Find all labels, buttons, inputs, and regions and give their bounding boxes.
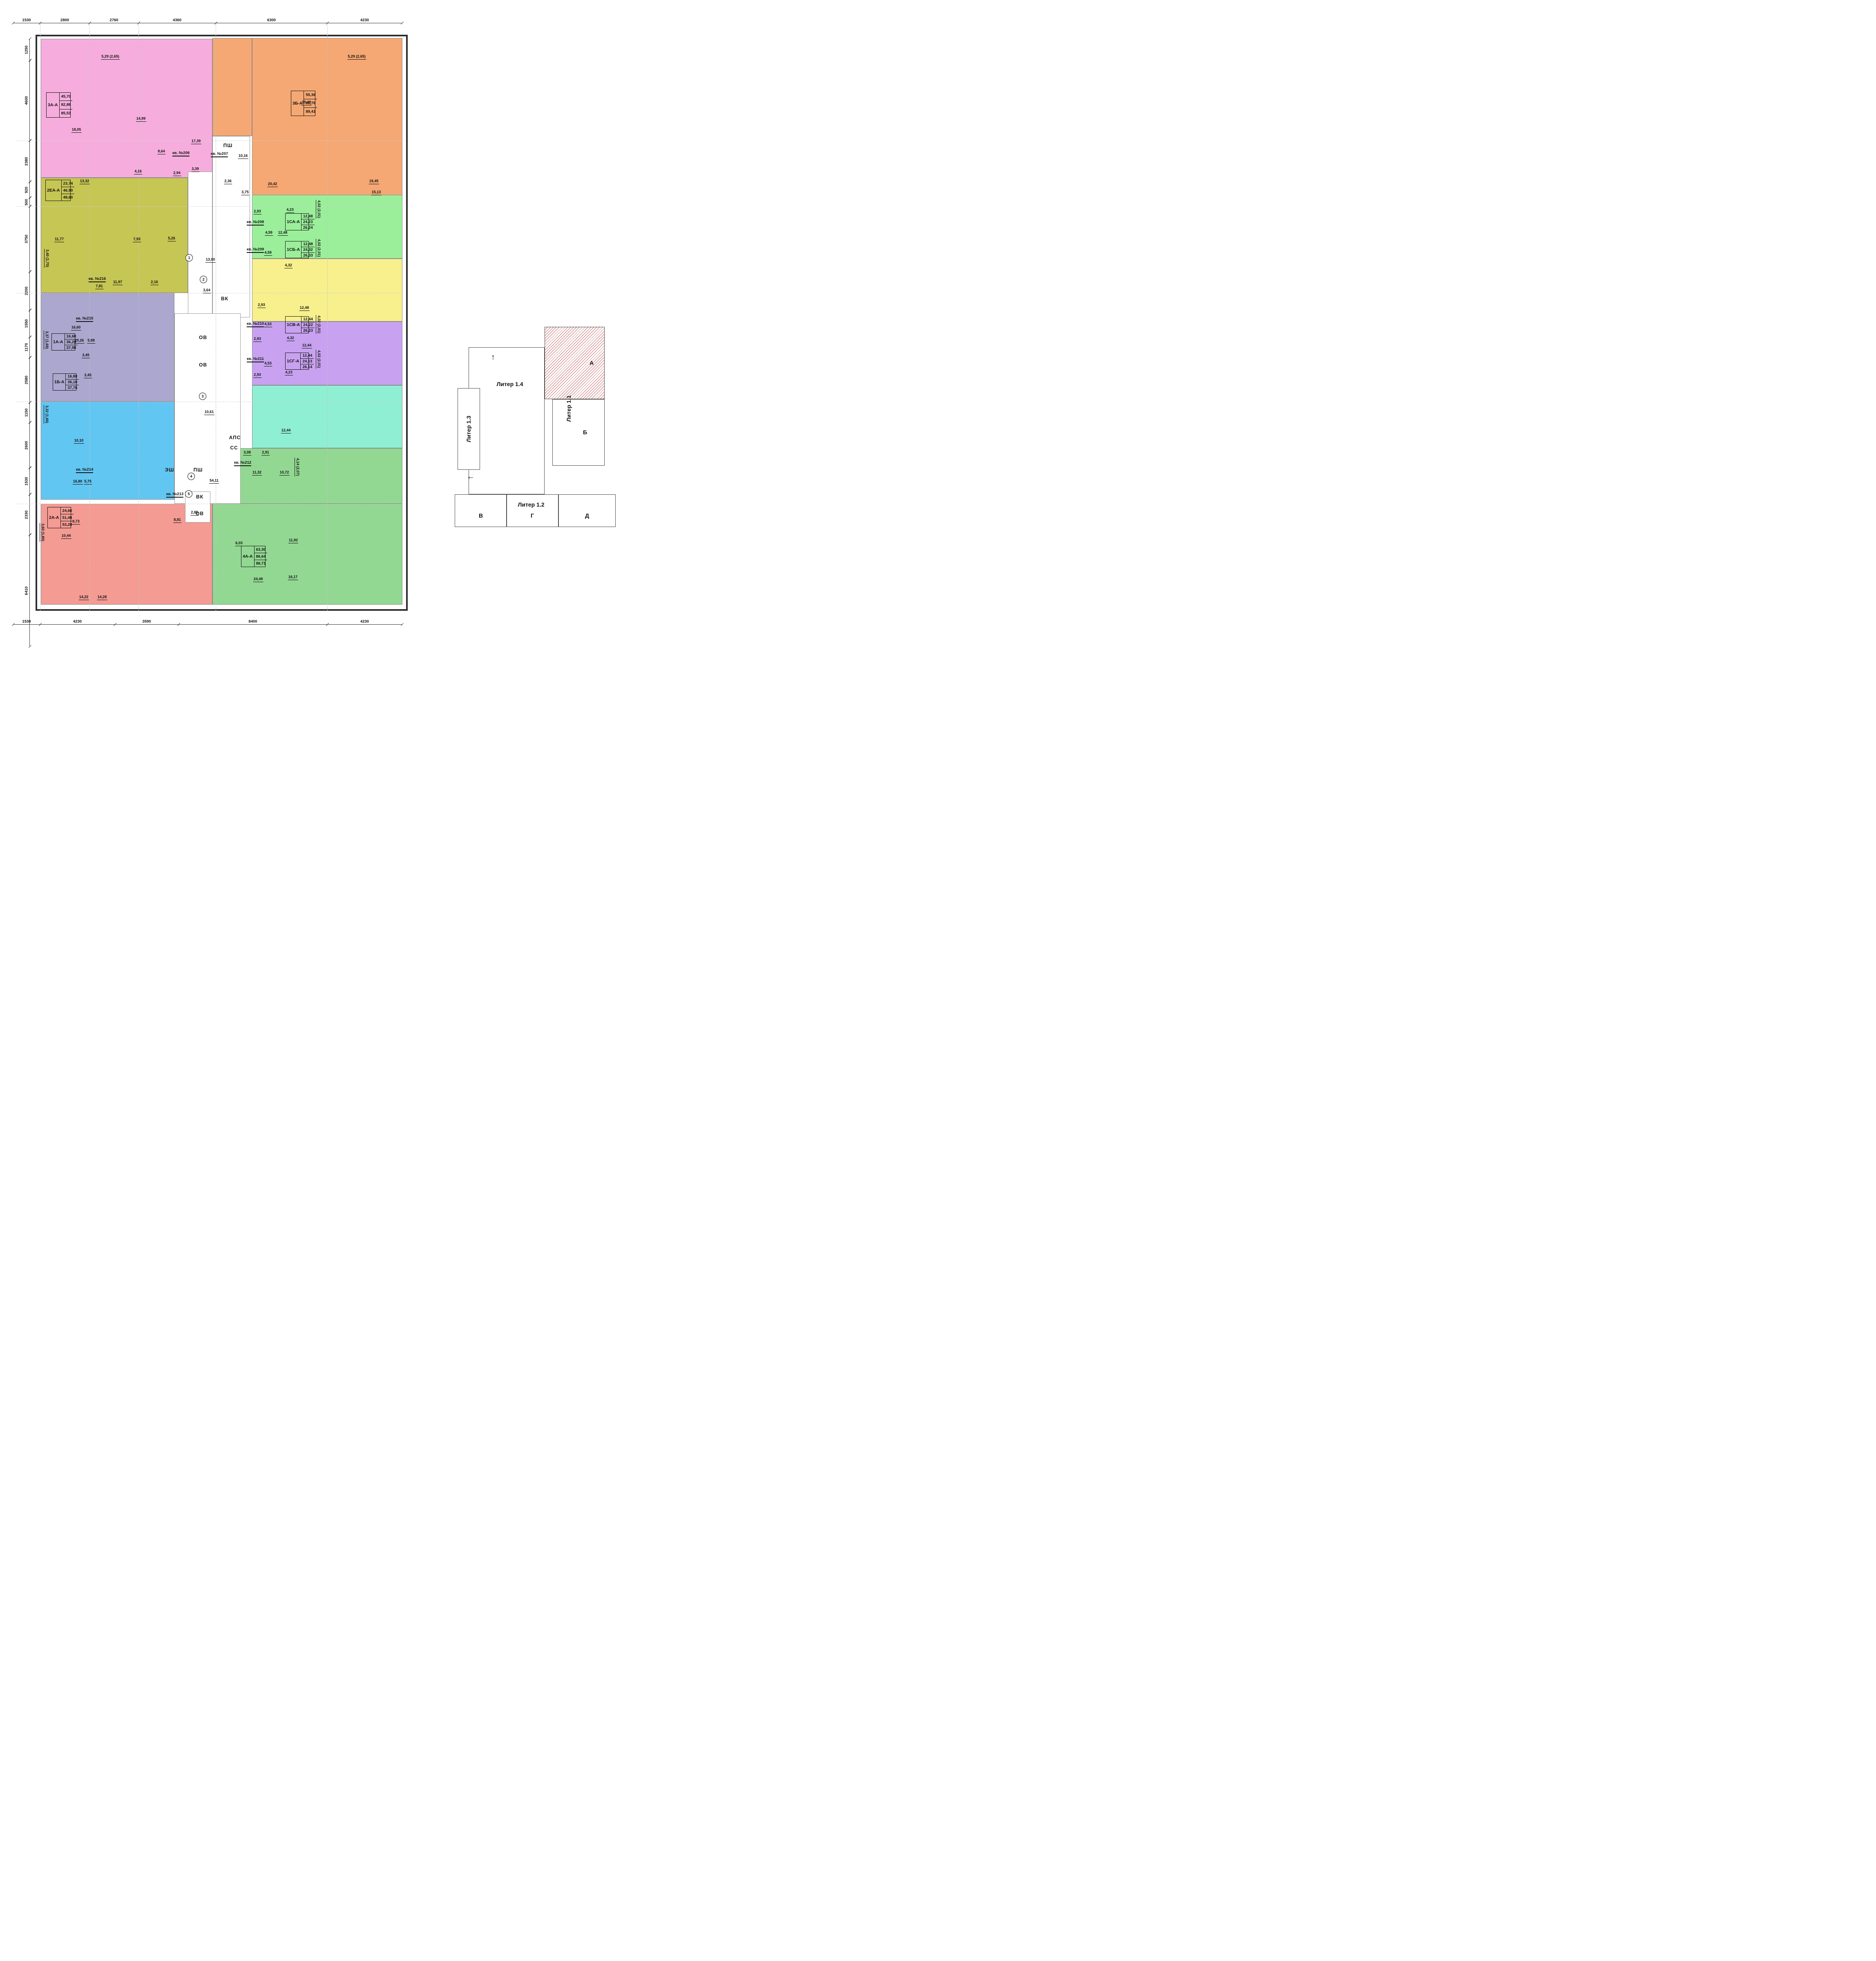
keyplan-label-liter14: Литер 1.4: [497, 381, 523, 387]
flat-number-label: кв. №215: [76, 316, 93, 322]
dimension-segment: 4600: [29, 60, 30, 141]
shaft-label: ВК: [221, 296, 228, 302]
dim-tick: [400, 623, 403, 626]
room-area-label: 3,75: [241, 190, 249, 195]
dimension-value: 4230: [360, 619, 369, 624]
dim-tick: [28, 421, 31, 424]
apartment-areas: 23,7446,9048,60: [61, 180, 75, 201]
apartment-areas: 63,3086,6488,71: [254, 546, 268, 567]
apartment-type-label: 1СБ-А: [286, 241, 301, 258]
room-area-label: 4,53: [264, 362, 272, 366]
room-area-label: 3,32 (1,66): [44, 405, 49, 424]
apartment-area-value: 51,48: [61, 514, 74, 521]
room-area-label: 3,40 (1,70): [44, 249, 49, 268]
dimension-value: 2600: [25, 440, 29, 450]
dimension-segment: 1530: [13, 23, 40, 23]
shaft-label: ПШ: [194, 467, 203, 473]
apartment-areas: 24,6651,4853,28: [60, 507, 74, 528]
dimension-value: 1550: [25, 319, 29, 328]
room-area-label: 12,48: [278, 231, 288, 236]
room-area-label: 10,10: [74, 439, 84, 444]
dimension-segment: 6410: [29, 535, 30, 646]
dimension-segment: 1530: [29, 468, 30, 494]
room-area-label: 3,39: [191, 167, 199, 172]
dimension-segment: 4230: [40, 624, 115, 625]
apartment-info-box: 1СВ-А12,4424,2226,23: [285, 316, 309, 333]
apartment-area-value: 36,10: [66, 379, 79, 385]
dimension-segment: 4230: [327, 23, 402, 23]
apartment-area-value: 12,44: [301, 353, 314, 358]
dimension-segment: 2380: [29, 141, 30, 182]
keyplan-label-liter12: Литер 1.2: [518, 501, 545, 508]
apartment-area-value: 89,41: [304, 107, 317, 116]
dim-tick: [28, 180, 31, 183]
axis-line: [216, 25, 216, 611]
room-area-label: 4,23: [286, 208, 294, 213]
room-area-label: 3,37 (1,69): [44, 331, 49, 349]
apartment-area-value: 53,28: [61, 521, 74, 528]
dim-tick: [400, 22, 403, 25]
dimension-value: 2380: [25, 156, 29, 166]
node-number-1: 1: [185, 254, 193, 261]
room-area-label: 12,44: [281, 429, 291, 433]
dim-tick: [28, 356, 31, 359]
keyplan-label-g: Г: [531, 512, 534, 519]
apartment-type-label: 1СВ-А: [286, 317, 301, 333]
room-area-label: 5,26: [167, 237, 176, 241]
room-area-label: 11,77: [54, 237, 64, 242]
flat-number-label: кв. №212: [234, 460, 251, 466]
node-number-3: 3: [199, 393, 206, 400]
keyplan-block-d: [558, 494, 616, 527]
apartment-area-value: 85,53: [60, 109, 73, 117]
apartment-region-10: [240, 448, 402, 504]
apartment-areas: 16,6036,2937,98: [65, 334, 78, 350]
dimension-value: 4360: [172, 18, 182, 22]
room-area-label: 13,00: [205, 258, 216, 263]
dimension-segment: 2760: [89, 23, 138, 23]
room-area-label: 14,22: [79, 595, 89, 600]
axis-line: [16, 504, 404, 504]
room-area-label: 54,11: [209, 479, 219, 484]
keyplan-arrow-up-icon: ↑: [491, 353, 495, 362]
floor-plan-sheet: 3А-А45,7082,8885,53кв. №2063Б-А55,3686,7…: [0, 0, 625, 654]
shaft-label: ВК: [196, 494, 203, 500]
room-area-label: 19,45: [369, 179, 379, 184]
apartment-area-value: 12,48: [301, 241, 315, 247]
apartment-info-box: 1А-А16,6036,2937,98: [51, 333, 75, 351]
room-area-label: 7,81: [95, 284, 103, 289]
room-area-label: 4,32: [286, 336, 295, 341]
dimension-value: 8400: [248, 619, 257, 624]
apartment-region-1: [212, 38, 252, 136]
shaft-label: ПШ: [223, 143, 233, 148]
apartment-info-box: 1Б-А16,8036,1037,76: [53, 373, 76, 391]
node-number-5: 5: [185, 490, 192, 498]
shaft-label: ОВ: [196, 511, 204, 516]
axis-line: [327, 25, 328, 611]
apartment-area-value: 45,70: [60, 93, 73, 101]
dimension-segment: 1550: [29, 310, 30, 337]
dim-tick: [28, 196, 31, 199]
dimension-segment: 4360: [138, 23, 216, 23]
room-area-label: 12,48: [299, 306, 310, 311]
keyplan-label-liter13: Литер 1.3: [465, 416, 472, 442]
room-area-label: 4,02 (2,01): [316, 315, 321, 334]
apartment-info-box: 1СГ-А12,4424,1326,14: [285, 353, 309, 370]
apartment-area-value: 26,14: [301, 364, 314, 370]
room-area-label: 2,93: [257, 303, 266, 308]
shaft-label: ЭШ: [165, 467, 174, 473]
room-area-label: 7,93: [133, 237, 141, 242]
room-area-label: 4,59: [265, 231, 273, 236]
dimension-segment: 1250: [29, 39, 30, 60]
dim-tick: [11, 22, 14, 25]
room-area-label: 12,44: [302, 344, 312, 348]
room-area-label: 14,28: [97, 595, 107, 600]
dim-tick: [28, 270, 31, 273]
flat-number-label: кв. №211: [247, 357, 264, 362]
apartment-areas: 12,4824,2326,24: [301, 214, 315, 230]
dim-tick: [28, 466, 31, 469]
dim-tick: [11, 623, 14, 626]
apartment-areas: 16,8036,1037,76: [65, 374, 79, 390]
dimension-segment: 2200: [29, 272, 30, 310]
dimension-segment: 4230: [327, 624, 402, 625]
axis-line: [16, 141, 404, 141]
shaft-label: СС: [230, 445, 238, 451]
room-area-label: 8,81: [173, 518, 181, 523]
apartment-area-value: 24,13: [301, 358, 314, 364]
flat-number-label: кв. №210: [247, 322, 264, 327]
dimension-segment: 3750: [29, 206, 30, 272]
room-area-label: 18,05: [71, 128, 82, 133]
stair-core: [188, 172, 212, 317]
apartment-type-label: 3Б-А: [291, 91, 304, 116]
room-area-label: 15,13: [371, 190, 382, 195]
room-area-label: 3,08: [243, 451, 251, 456]
room-area-label: 3,64: [203, 288, 211, 293]
corridor-shaft: [212, 136, 250, 317]
shaft-label: ОВ: [199, 335, 207, 340]
dim-tick: [28, 645, 31, 648]
room-area-label: 2,94: [173, 171, 181, 176]
apartment-area-value: 24,32: [301, 247, 315, 252]
apartment-area-value: 86,64: [255, 553, 268, 560]
room-area-label: 4,32: [284, 264, 293, 268]
apartment-area-value: 12,48: [301, 214, 315, 219]
room-area-label: 24,49: [253, 577, 264, 582]
dimension-segment: 1170: [29, 337, 30, 357]
dimension-segment: 1530: [13, 624, 40, 625]
apartment-area-value: 23,74: [62, 180, 75, 187]
dimension-segment: 2580: [29, 357, 30, 402]
apartment-type-label: 3А-А: [47, 93, 59, 117]
room-area-label: 2,91: [261, 451, 270, 456]
flat-number-label: кв. №209: [247, 247, 264, 253]
dimension-segment: 2330: [29, 494, 30, 535]
room-area-label: 2,36: [224, 179, 232, 184]
room-area-label: 10,61: [204, 410, 214, 415]
dim-tick: [28, 533, 31, 536]
apartment-type-label: 1Б-А: [53, 374, 65, 390]
keyplan-label-d: Д: [585, 512, 589, 519]
keyplan-block-b: [552, 399, 605, 466]
axis-line: [138, 25, 139, 611]
dimension-segment: 920: [29, 182, 30, 198]
dimension-value: 3590: [142, 619, 151, 624]
apartment-areas: 12,4424,1326,14: [300, 353, 314, 369]
room-area-label: 4,02 (2,01): [316, 239, 321, 257]
axis-line: [16, 206, 404, 207]
room-area-label: 4,16: [134, 170, 142, 174]
apartment-area-value: 24,22: [301, 322, 315, 328]
apartment-info-box: 2А-А24,6651,4853,28: [47, 507, 71, 528]
apartment-region-8: [41, 402, 174, 500]
apartment-info-box: 3Б-А55,3686,7689,41: [291, 91, 315, 116]
dimension-value: 1530: [25, 476, 29, 486]
apartment-area-value: 36,29: [65, 339, 78, 345]
apartment-area-value: 37,76: [66, 385, 79, 391]
apartment-areas: 55,3686,7689,41: [304, 91, 317, 116]
dimension-value: 4230: [360, 18, 369, 22]
apartment-area-value: 88,71: [255, 560, 268, 567]
keyplan-block-g: [507, 494, 558, 527]
dimension-value: 1530: [22, 619, 31, 624]
room-area-label: 4,23: [285, 371, 293, 375]
room-area-label: 17,39: [191, 139, 201, 144]
room-area-label: 11,97: [113, 280, 123, 285]
room-area-label: 8,64: [157, 150, 165, 154]
dimension-value: 1250: [25, 45, 29, 54]
axis-line: [16, 402, 404, 402]
apartment-info-box: 4А-А63,3086,6488,71: [241, 546, 266, 567]
dimension-segment: 8400: [179, 624, 327, 625]
flat-number-label: кв. №208: [247, 220, 264, 226]
dimension-segment: 2800: [40, 23, 89, 23]
keyplan-label-b: Б: [583, 429, 587, 436]
keyplan-block-v: [455, 494, 507, 527]
dimension-value: 1150: [25, 408, 29, 417]
apartment-area-value: 16,80: [66, 374, 79, 379]
room-area-label: 20,42: [268, 182, 278, 187]
dimension-value: 6300: [267, 18, 276, 22]
room-area-label: 4,59: [264, 251, 272, 256]
dimension-segment: 500: [29, 198, 30, 206]
dimension-value: 6410: [25, 586, 29, 595]
room-area-label: 3,45: [84, 373, 92, 378]
apartment-type-label: 2А-А: [48, 507, 60, 528]
dimension-segment: 1150: [29, 402, 30, 422]
shaft-label: ОВ: [199, 362, 207, 368]
room-area-label: 5,29 (2,65): [347, 55, 366, 60]
room-area-label: 10,72: [279, 471, 290, 476]
room-area-label: 2,93: [253, 210, 261, 214]
dimension-value: 2330: [25, 510, 29, 519]
dimension-value: 4230: [73, 619, 82, 624]
apartment-area-value: 16,60: [65, 334, 78, 339]
apartment-info-box: 1СБ-А12,4824,3226,33: [285, 241, 309, 258]
room-area-label: 3,45: [82, 353, 90, 358]
room-area-label: 10,16: [238, 154, 248, 159]
flat-number-label: кв. №207: [211, 152, 228, 157]
flat-number-label: кв. №216: [89, 277, 106, 282]
apartment-area-value: 24,66: [61, 507, 74, 514]
apartment-area-value: 46,90: [62, 187, 75, 194]
apartment-areas: 12,4824,3226,33: [301, 241, 315, 258]
room-area-label: 14,99: [136, 117, 146, 122]
apartment-area-value: 48,60: [62, 194, 75, 201]
room-area-label: 2,93: [253, 373, 261, 378]
keyplan-block-a: [545, 327, 605, 399]
room-area-label: 11,92: [288, 538, 298, 543]
dimension-segment: 2600: [29, 422, 30, 468]
apartment-areas: 12,4424,2226,23: [301, 317, 315, 333]
apartment-area-value: 63,30: [255, 546, 268, 553]
apartment-area-value: 86,76: [304, 99, 317, 107]
elevator-core: [174, 313, 241, 504]
dimension-segment: 3590: [115, 624, 179, 625]
dimension-value: 920: [25, 186, 29, 194]
apartment-info-box: 2ЕА-А23,7446,9048,60: [45, 180, 71, 201]
dimension-value: 500: [25, 199, 29, 206]
apartment-type-label: 1СА-А: [286, 214, 301, 230]
apartment-area-value: 26,33: [301, 252, 315, 258]
flat-number-label: кв. №214: [76, 467, 93, 473]
apartment-area-value: 24,23: [301, 219, 315, 225]
room-area-label: 5,29 (2,65): [101, 55, 120, 60]
flat-number-label: кв. №206: [172, 151, 190, 156]
dim-tick: [28, 335, 31, 338]
room-area-label: 5,75: [84, 480, 92, 485]
apartment-type-label: 2ЕА-А: [46, 180, 61, 201]
apartment-area-value: 55,36: [304, 91, 317, 99]
room-area-label: 4,02 (2,01): [316, 350, 321, 369]
room-area-label: 5,98: [87, 339, 95, 344]
room-area-label: 10,44: [61, 534, 71, 539]
keyplan-arrow-left-icon: ←: [467, 472, 475, 482]
room-area-label: 16,17: [288, 575, 298, 580]
room-area-label: 13,32: [80, 179, 90, 184]
dimension-value: 2760: [109, 18, 118, 22]
dim-tick: [28, 37, 31, 40]
dim-tick: [28, 493, 31, 496]
node-number-4: 4: [188, 473, 195, 480]
apartment-area-value: 37,98: [65, 345, 78, 351]
dimension-value: 1530: [22, 18, 31, 22]
keyplan-label-liter11: Литер 1.1: [565, 395, 572, 422]
dimension-segment: 6300: [216, 23, 327, 23]
apartment-type-label: 1СГ-А: [286, 353, 300, 369]
room-area-label: 4,14 (2,07): [295, 458, 299, 476]
room-area-label: 16,60: [71, 326, 81, 331]
room-area-label: 4,53: [264, 322, 272, 327]
dim-tick: [28, 59, 31, 62]
room-area-label: 16,80: [73, 480, 83, 485]
apartment-info-box: 1СА-А12,4824,2326,24: [285, 213, 309, 230]
room-area-label: 4,02 (2,01): [316, 200, 321, 219]
shaft-label: АПС: [229, 435, 241, 440]
room-area-label: 2,16: [150, 280, 159, 285]
dimension-value: 3750: [25, 234, 29, 243]
apartment-area-value: 26,24: [301, 225, 315, 230]
apartment-area-value: 12,44: [301, 317, 315, 322]
apartment-info-box: 3А-А45,7082,8885,53: [46, 92, 71, 118]
apartment-type-label: 1А-А: [52, 334, 65, 350]
flat-number-label: кв. №213: [166, 492, 183, 498]
room-area-label: 3,60 (1,80): [40, 523, 45, 542]
dimension-value: 2580: [25, 375, 29, 384]
apartment-type-label: 4А-А: [241, 546, 254, 567]
room-area-label: 11,32: [252, 471, 262, 476]
apartment-area-value: 26,23: [301, 328, 315, 333]
room-area-label: 2,93: [253, 337, 261, 342]
dimension-value: 2800: [60, 18, 69, 22]
apartment-area-value: 82,88: [60, 101, 73, 109]
dimension-value: 4600: [25, 96, 29, 105]
dim-tick: [28, 308, 31, 311]
apartment-areas: 45,7082,8885,53: [59, 93, 73, 117]
dimension-value: 2200: [25, 286, 29, 295]
keyplan-label-a: А: [590, 360, 594, 366]
dimension-value: 1170: [25, 343, 29, 352]
node-number-2: 2: [200, 276, 207, 283]
keyplan-label-v: В: [479, 512, 483, 519]
